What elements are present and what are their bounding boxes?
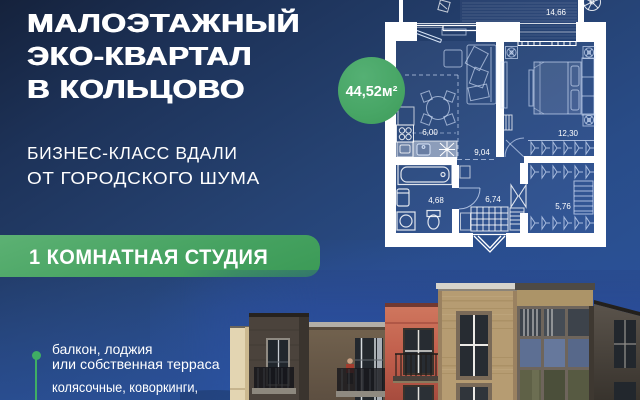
- svg-text:9,04: 9,04: [474, 148, 490, 157]
- svg-text:14,66: 14,66: [546, 8, 567, 17]
- svg-text:5,76: 5,76: [555, 202, 571, 211]
- svg-text:6,74: 6,74: [485, 195, 501, 204]
- svg-text:44,52м²: 44,52м²: [346, 84, 398, 100]
- svg-text:12,30: 12,30: [558, 129, 579, 138]
- svg-text:6,00: 6,00: [422, 128, 438, 137]
- svg-text:4,68: 4,68: [428, 196, 444, 205]
